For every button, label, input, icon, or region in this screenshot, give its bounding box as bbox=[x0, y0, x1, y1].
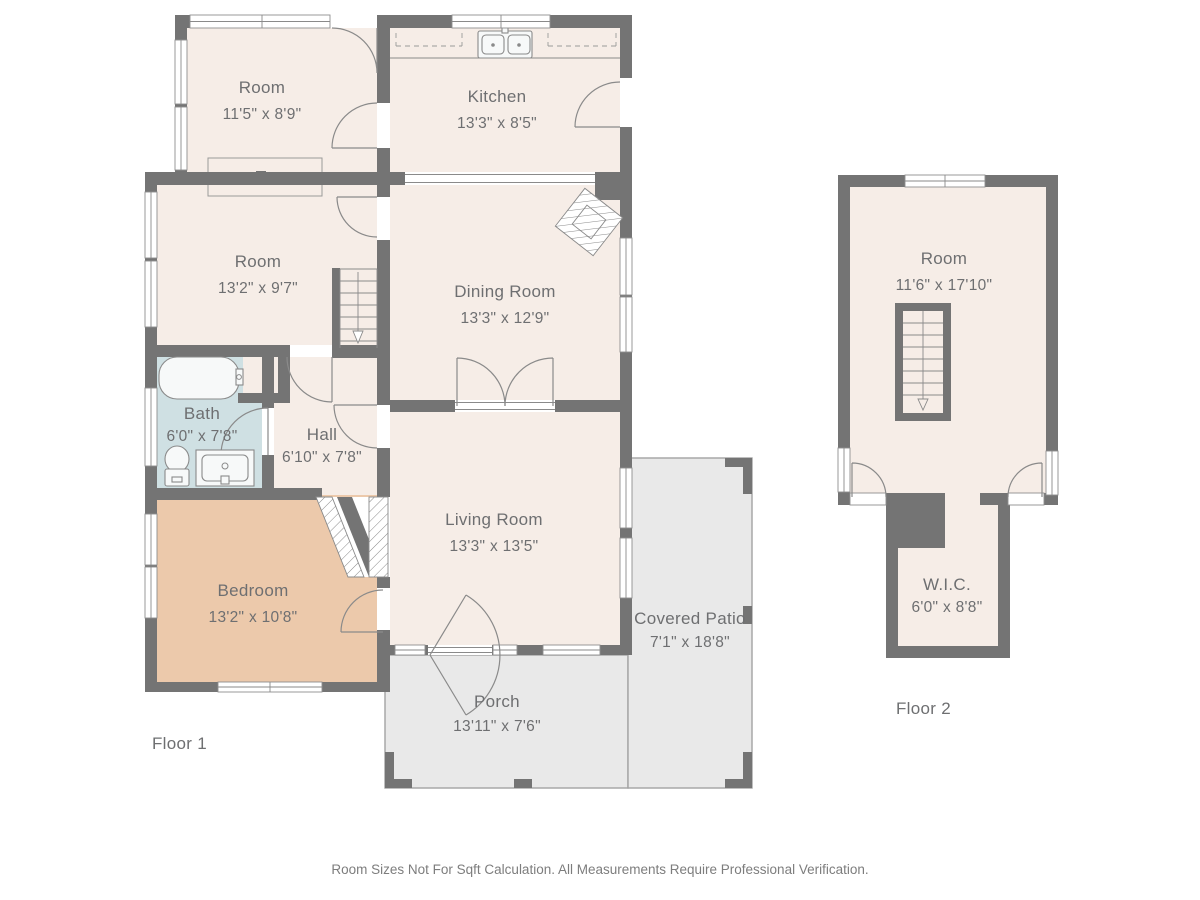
kitchen-sink-icon bbox=[478, 26, 532, 58]
kitchen-label: Kitchen bbox=[468, 87, 527, 106]
room-floor2-dims: 11'6" x 17'10" bbox=[896, 277, 993, 294]
room-topleft bbox=[181, 22, 377, 175]
room-middle-label: Room bbox=[235, 252, 282, 271]
floor1-title: Floor 1 bbox=[152, 734, 207, 753]
toilet-icon bbox=[165, 446, 189, 486]
stairs-floor2 bbox=[895, 303, 951, 421]
hall-label: Hall bbox=[307, 425, 338, 444]
bathtub-icon bbox=[159, 357, 243, 399]
dining-dims: 13'3" x 12'9" bbox=[461, 310, 550, 327]
sink-vanity-icon bbox=[196, 450, 254, 486]
bath-label: Bath bbox=[184, 404, 220, 423]
disclaimer-text: Room Sizes Not For Sqft Calculation. All… bbox=[331, 862, 868, 877]
floor-plan-drawing: Room 11'5" x 8'9" Kitchen 13'3" x 8'5" R… bbox=[0, 0, 1200, 900]
bath-dims: 6'0" x 7'8" bbox=[166, 428, 237, 445]
room-floor2-label: Room bbox=[921, 249, 968, 268]
hall-dims: 6'10" x 7'8" bbox=[282, 449, 362, 466]
patio-dims: 7'1" x 18'8" bbox=[650, 634, 730, 651]
wic-label: W.I.C. bbox=[923, 575, 971, 594]
wic-dims: 6'0" x 8'8" bbox=[911, 599, 982, 616]
floor2-title: Floor 2 bbox=[896, 699, 951, 718]
dining-label: Dining Room bbox=[454, 282, 556, 301]
living-label: Living Room bbox=[445, 510, 543, 529]
room-middle-dims: 13'2" x 9'7" bbox=[218, 280, 298, 297]
patio-label: Covered Patio bbox=[634, 609, 746, 628]
kitchen-dims: 13'3" x 8'5" bbox=[457, 115, 537, 132]
porch-label: Porch bbox=[474, 692, 520, 711]
room-topleft-label: Room bbox=[239, 78, 286, 97]
room-topleft-dims: 11'5" x 8'9" bbox=[223, 106, 302, 123]
living-dims: 13'3" x 13'5" bbox=[450, 538, 539, 555]
bedroom-dims: 13'2" x 10'8" bbox=[209, 609, 298, 626]
floor1-plan: Room 11'5" x 8'9" Kitchen 13'3" x 8'5" R… bbox=[145, 15, 752, 788]
wic-passage bbox=[945, 499, 998, 548]
porch-dims: 13'11" x 7'6" bbox=[453, 718, 541, 735]
floor-plan-page: Room 11'5" x 8'9" Kitchen 13'3" x 8'5" R… bbox=[0, 0, 1200, 900]
room-wic bbox=[892, 542, 1004, 652]
bedroom-label: Bedroom bbox=[217, 581, 288, 600]
floor2-plan: Room 11'6" x 17'10" W.I.C. 6'0" x 8'8" F… bbox=[838, 175, 1058, 718]
